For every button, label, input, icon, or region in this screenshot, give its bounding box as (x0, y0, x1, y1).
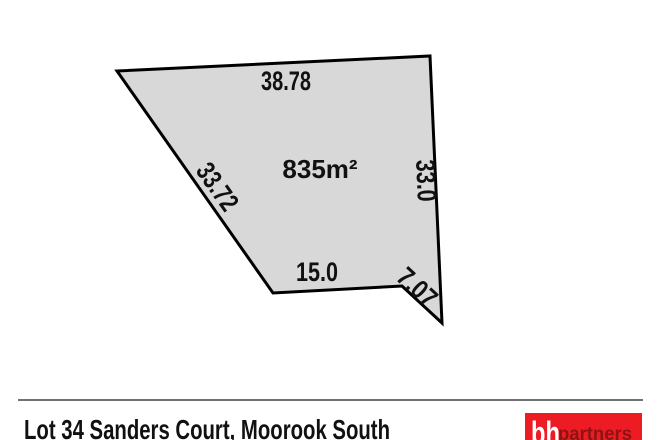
agency-logo-monogram: bh (531, 415, 560, 440)
dimension-right-label: 33.0 (410, 159, 442, 202)
dimension-top-label: 38.78 (261, 66, 311, 96)
agency-logo: bh partners (525, 413, 642, 440)
area-label: 835m² (282, 154, 357, 184)
lot-plan-canvas: 38.78 33.72 33.0 15.0 7.07 835m² Lot 34 … (0, 0, 660, 440)
agency-logo-wordmark: partners (558, 424, 632, 440)
lot-plan-page: { "plan": { "area_label": "835m²", "dime… (0, 0, 660, 440)
dimension-bottom-label: 15.0 (296, 257, 338, 287)
footer-address: Lot 34 Sanders Court, Moorook South (24, 414, 390, 440)
